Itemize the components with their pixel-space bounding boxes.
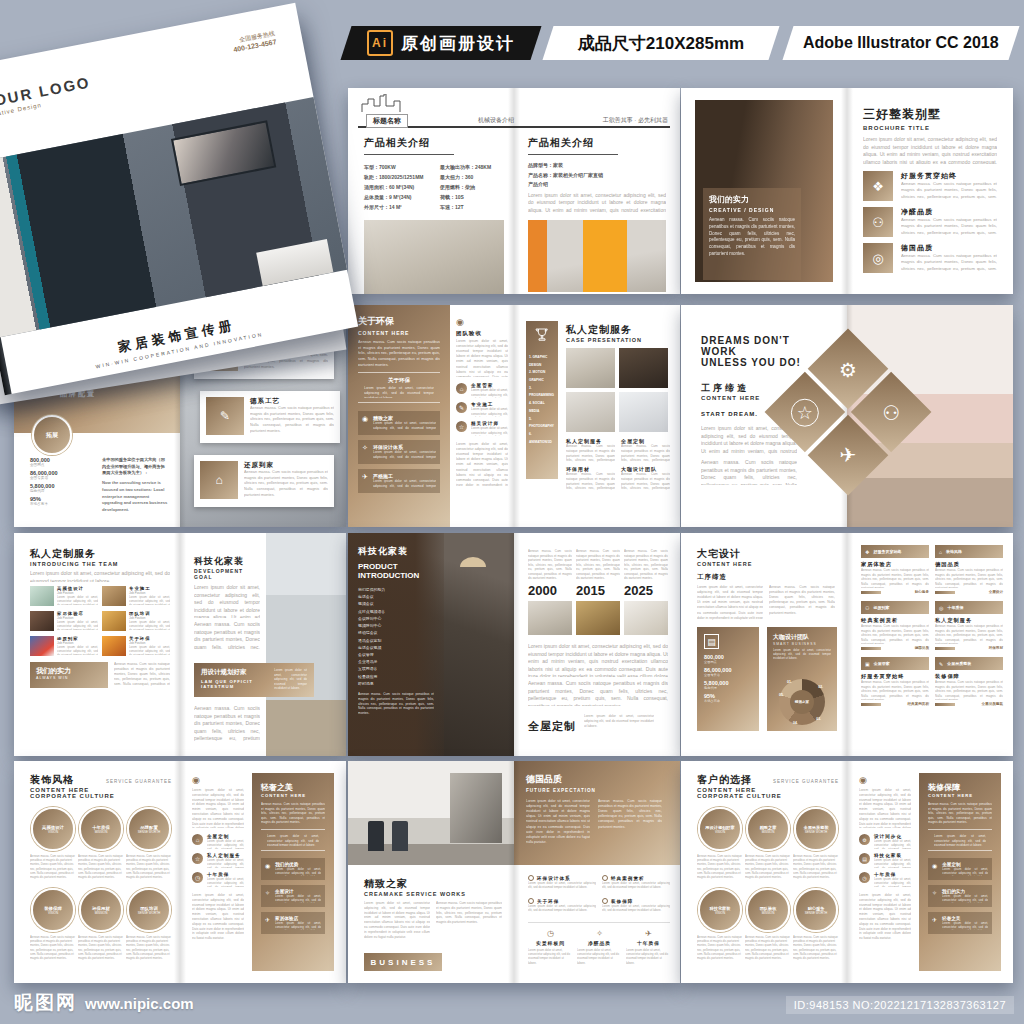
mini-item: ⌂全屋定制Lorem ipsum dolor sit amet, consect…	[192, 834, 244, 849]
mid-paragraph: Lorem ipsum dolor sit amet, consectetur …	[192, 788, 244, 828]
mid-paragraph2: Lorem ipsum dolor sit amet, consectetur …	[192, 893, 244, 939]
tech-subtitle: DEVELOPMENT GOAL	[194, 568, 260, 580]
team-item: ⌂ 全屋管家Lorem ipsum dolor sit amet, consec…	[456, 383, 508, 398]
german-paragraph: Lorem ipsum dolor sit amet, consectetur …	[526, 799, 590, 851]
feature-text: Lorem ipsum dolor sit amet, consectetur …	[942, 894, 988, 903]
service-card: ✎全屋品质整装装修保障Aenean massa. Cum sociis nato…	[935, 657, 1003, 706]
team-intro: Lorem ipsum dolor sit amet, consectetur …	[30, 570, 170, 582]
culture-cell: 高颜值设计VISIONAenean massa. Cum sociis nato…	[30, 807, 76, 882]
product-paragraph: Lorem ipsum dolor sit amet, consectetur …	[528, 192, 666, 214]
card-text: Aenean massa. Cum sociis natoque penatib…	[244, 470, 328, 498]
spread-mansion-design: 大宅设计 CONTENT HERE 工序缔造 Lorem ipsum dolor…	[681, 533, 1013, 756]
bullet-item: 环保设计体系Lorem ipsum dolor sit amet, consec…	[528, 875, 596, 893]
team-title: 私人定制服务	[30, 547, 170, 561]
choice-cell: 贴心服务SENSE WORTHAenean massa. Cum sociis …	[793, 888, 839, 963]
card-footer-label: 全屋设计	[989, 590, 1003, 594]
spec-item: 荷载：10S	[440, 192, 504, 202]
team-column: ◉ 团队验收 Lorem ipsum dolor sit amet, conse…	[456, 317, 508, 486]
bullet-item: 关于环保Lorem ipsum dolor sit amet, consecte…	[528, 898, 596, 916]
craft-icon: ✎	[206, 397, 244, 435]
card-title: 经典案例赏析	[861, 617, 929, 624]
row-text: Lorem ipsum dolor sit amet, consectetur …	[373, 450, 436, 460]
mini-icon: ☆	[192, 853, 203, 864]
member-photo	[102, 636, 126, 656]
donut-label: 05.	[779, 693, 784, 697]
feature-title: 德国品质	[901, 243, 997, 253]
nipic-product-preview: { "colors":{"background":"#a8b1c0","acce…	[0, 0, 1024, 1024]
people-chat-icon: ⚇	[863, 207, 893, 237]
mini-icon: ⚙	[859, 834, 870, 845]
bullet-text: Lorem ipsum dolor sit amet, consectetur …	[528, 904, 596, 916]
business-button: BUSINESS	[364, 953, 442, 971]
topbar-design-text: 原创画册设计	[401, 32, 515, 55]
overlay-paragraph: Aenean massa. Cum sociis natoque penatib…	[709, 217, 795, 261]
team-item: ✎ 专业施工Lorem ipsum dolor sit amet, consec…	[456, 402, 508, 417]
capability-item: 互联网语音	[358, 665, 434, 672]
feature-text: Lorem ipsum dolor sit amet, consectetur …	[275, 867, 321, 876]
timeline-paragraph: Aenean massa. Cum sociis natoque penatib…	[528, 549, 572, 579]
badge-sub: VISION	[48, 830, 58, 834]
bullet-item: 装修保障Lorem ipsum dolor sit amet, consecte…	[602, 898, 670, 916]
process-label: 工序缔造	[697, 573, 837, 582]
stats-list: 800,000全国网点 86,000,000全国专卖店 5,800,000电商代…	[30, 457, 94, 506]
card-header-icon: ⌂	[939, 549, 942, 555]
donut-label: 02.	[818, 685, 823, 689]
item-text: Lorem ipsum dolor sit amet, consectetur …	[471, 426, 508, 436]
bullet-title: 关于环保	[537, 899, 559, 904]
spread-environment-custom: 关于环保 CONTENT HERE Aenean massa. Cum soci…	[348, 305, 680, 527]
creamake-paragraph: Aenean massa. Cum sociis natoque penatib…	[436, 901, 502, 945]
topbar-software-text: Adobe Illustrator CC 2018	[803, 34, 999, 52]
dining-photo: 科技化家装 PRODUCT INTRODUCTION 我们提供的能力电话会议视频…	[348, 533, 514, 756]
mini-text: Lorem ipsum dolor sit amet, consectetur …	[874, 858, 911, 868]
cell-text: Aenean massa. Cum sociis natoque penatib…	[126, 854, 172, 882]
spread-header: 标题名称 机械设备介绍 工欲善其事 · 必先利其器	[358, 100, 670, 128]
feature-text: Lorem ipsum dolor sit amet, consectetur …	[275, 894, 321, 903]
feature-item: ❖ 好服务贯穿始终 Aenean massa. Cum sociis natoq…	[863, 171, 997, 201]
german-subtitle: FUTURE EXPECTATION	[526, 788, 668, 793]
trophy-icon	[533, 326, 551, 344]
timeline-page: Aenean massa. Cum sociis natoque penatib…	[528, 549, 668, 734]
member-photo	[30, 586, 54, 606]
icon-col: ◷实景样板间Lorem ipsum dolor sit amet, consec…	[528, 929, 573, 966]
panel-feature: ◉我们的优势Lorem ipsum dolor sit amet, consec…	[261, 858, 325, 880]
choice-cell: 全屋品质整装SENSE WORTHAenean massa. Cum socii…	[793, 807, 839, 882]
donut-label: 04.	[793, 721, 798, 725]
strength-banner: 我们的实力 ALWAYS WIN	[30, 662, 108, 688]
logo-mark-icon: ◉	[192, 775, 244, 785]
spec-item: 适用面积：60 M²(34N)	[364, 182, 430, 192]
capability-item: 会议呼叫中心	[358, 615, 434, 622]
member-photo	[102, 611, 126, 631]
circle-label: 拓展	[46, 431, 58, 440]
spec-item: 车速：12T	[440, 202, 504, 212]
bonsai-photo	[266, 533, 346, 756]
card-header-icon: ✎	[939, 661, 943, 667]
feature-title: 好服务贯穿始终	[901, 171, 997, 181]
office-photo	[528, 220, 666, 292]
member-text: Lorem ipsum dolor sit amet, consectetur …	[129, 595, 170, 605]
donut-label: 01.	[787, 680, 792, 684]
card-footer-bar	[935, 703, 955, 706]
interior-photo	[364, 220, 504, 294]
badge-sub: MISSION	[762, 911, 775, 915]
stat-label: 市场占有率	[704, 699, 752, 703]
badge-sub: VISION	[715, 830, 725, 834]
topbar-software-label: Adobe Illustrator CC 2018	[782, 26, 1019, 60]
left-title: 产品相关介绍	[364, 136, 454, 155]
feature-text: Aenean massa. Cum sociis natoque penatib…	[901, 181, 997, 199]
member-card: 专业施工Job PositionLorem ipsum dolor sit am…	[102, 586, 170, 606]
spec-item: 轨距：1800/2025/1251MM	[364, 172, 430, 182]
member-card: 家居体验店Job PositionLorem ipsum dolor sit a…	[30, 611, 98, 631]
org-chart-icon: ❖	[863, 171, 893, 201]
col-text: Lorem ipsum dolor sit amet, consectetur …	[577, 948, 622, 966]
card-footer-bar	[861, 647, 881, 650]
case-photo	[619, 348, 668, 388]
mini-text: Lorem ipsum dolor sit amet, consectetur …	[207, 839, 244, 849]
banner-item: 5. PHOTOGRAPHY	[529, 416, 555, 431]
spec-item: 外形尺寸：14 M²	[364, 202, 430, 212]
capability-item: 视频呼叫中心	[358, 622, 434, 629]
tech-paragraph: Lorem ipsum dolor sit amet, consectetur …	[194, 584, 260, 618]
cell-text: Aenean massa. Cum sociis natoque penatib…	[793, 935, 839, 963]
creamake-subtitle: CREAMAKE SERVICE WORKS	[364, 891, 504, 897]
env-row: ◉ 精致之家Lorem ipsum dolor sit amet, consec…	[358, 411, 440, 435]
service-guarantee-label: SERVICE GUARANTEE	[773, 779, 839, 784]
tech-title: 科技化家装	[194, 555, 260, 568]
image-id-badge: ID:948153 NO:20221217132837363127	[786, 996, 1014, 1014]
header-right-text: 工欲善其事 · 必先利其器	[603, 116, 668, 125]
capability-item: 电话会议	[358, 593, 434, 600]
feature-text: Lorem ipsum dolor sit amet, consectetur …	[942, 921, 988, 930]
cover-mockup: YOUR LOGO Creative Design 全国服务热线 400-123…	[0, 3, 358, 396]
row-text: Lorem ipsum dolor sit amet, consectetur …	[373, 421, 436, 431]
tech-left-col: 科技化家装 DEVELOPMENT GOAL Lorem ipsum dolor…	[194, 555, 260, 649]
stat-label: 全国网点	[704, 660, 752, 664]
cell-text: Aenean massa. Cum sociis natoque penatib…	[30, 854, 76, 882]
member-text: Lorem ipsum dolor sit amet, consectetur …	[57, 595, 98, 605]
overlay-sub1: PRODUCT	[358, 562, 434, 571]
bed-corner	[256, 239, 333, 286]
choice-left-page: 客户的选择 CONTENT HERE CORPORATE CULTURE SER…	[697, 773, 839, 963]
choice-cell: 用设计规划好家VISIONAenean massa. Cum sociis na…	[697, 807, 743, 882]
panel-title: 装修保障	[928, 782, 992, 793]
card-text: Aenean massa. Cum sociis natoque penatib…	[250, 406, 334, 434]
card-header-title: 十年质保	[947, 605, 963, 610]
banner-title: 我们的实力	[36, 666, 102, 676]
german-paragraph: Aenean massa. Cum sociis natoque penatib…	[598, 799, 662, 851]
banner-item: 4. SOCIAL MEDIA	[529, 400, 555, 415]
feature-item: ◎ 德国品质 Aenean massa. Cum sociis natoque …	[863, 243, 997, 273]
card-footer-label: 环保用材	[989, 646, 1003, 650]
mini-text: Lorem ipsum dolor sit amet, consectetur …	[874, 839, 911, 849]
service-card: ◎十年质保私人定制服务Aenean massa. Cum sociis nato…	[935, 601, 1003, 650]
card-header-title: 装饰风格	[946, 549, 962, 554]
culture-cell: 装修保障VISIONAenean massa. Cum sociis natoq…	[30, 888, 76, 963]
dreams-title-line1: DREAMS DON'T WORK	[701, 335, 811, 357]
mini-item: ⚙设计同步化Lorem ipsum dolor sit amet, consec…	[859, 834, 911, 849]
cell-text: Aenean massa. Cum sociis natoque penatib…	[78, 854, 124, 882]
mini-icon: ◷	[192, 872, 203, 883]
member-card: 高颜值设计Job PositionLorem ipsum dolor sit a…	[30, 586, 98, 606]
brochure-cover: YOUR LOGO Creative Design 全国服务热线 400-123…	[0, 3, 358, 396]
craft-card: ✎ 德系工艺 Aenean massa. Cum sociis natoque …	[200, 391, 340, 443]
col-text: Lorem ipsum dolor sit amet, consectetur …	[626, 948, 671, 966]
bullet-text: Lorem ipsum dolor sit amet, consectetur …	[602, 904, 670, 916]
cell-text: Aenean massa. Cum sociis natoque penatib…	[30, 935, 76, 963]
donut-center-label: 精致之家	[790, 690, 814, 714]
feature-text: Lorem ipsum dolor sit amet, consectetur …	[942, 867, 988, 876]
target-icon: ◎	[863, 243, 893, 273]
bullet-title: 装修保障	[611, 899, 633, 904]
spec-item: 最大扭力：360	[440, 172, 504, 182]
mid-paragraph2: Lorem ipsum dolor sit amet, consectetur …	[859, 893, 911, 939]
mini-icon: ◷	[859, 872, 870, 883]
home-card: ⌂ 还原到家 Aenean massa. Cum sociis natoque …	[194, 455, 334, 507]
culture-cell: 团队培训SENSE WORTHAenean massa. Cum sociis …	[126, 888, 172, 963]
feature-text: Aenean massa. Cum sociis natoque penatib…	[901, 253, 997, 271]
card-footer-label: 贴心服务	[915, 590, 929, 594]
panel-quote: Lorem ipsum dolor sit amet, consectetur …	[934, 834, 986, 846]
quote-text: Lorem ipsum dolor sit amet, consectetur …	[364, 386, 434, 398]
dreams-paragraph: Aenean massa. Cum sociis natoque penatib…	[701, 459, 797, 485]
box-subtitle: LAM QUE OFFICIT IATESTRUM	[201, 679, 266, 689]
intro-paragraph: Lorem ipsum dolor sit amet, consectetur …	[863, 136, 997, 164]
case-content: 私人定制服务 CASE PRESENTATION 私人定制服务Aenean ma…	[566, 323, 668, 490]
choice-mid-col: ◉ Lorem ipsum dolor sit amet, consectetu…	[859, 775, 911, 939]
culture-mid-col: ◉ Lorem ipsum dolor sit amet, consectetu…	[192, 775, 244, 939]
card-footer-label: 德国品质	[915, 646, 929, 650]
col-title: 净醛品质	[577, 940, 622, 946]
card-text: Aenean massa. Cum sociis natoque penatib…	[935, 624, 1003, 644]
timeline-year: 2015	[576, 583, 620, 598]
spread-product-intro: 标题名称 机械设备介绍 工欲善其事 · 必先利其器 产品相关介绍 车型：700K…	[348, 88, 680, 294]
culture-cell: 品牌配置SENSE WORTHAenean massa. Cum sociis …	[126, 807, 172, 882]
icon-col: ✈十年质保Lorem ipsum dolor sit amet, consect…	[626, 929, 671, 966]
capability-item: 即时消息	[358, 680, 434, 687]
box-title: 用设计规划好家	[201, 668, 266, 677]
banner-item: 3. PROGRAMMING	[529, 385, 555, 400]
col-text: Aenean massa. Cum sociis natoque penatib…	[566, 444, 615, 462]
card-header-icon: ❖	[865, 549, 869, 555]
bullet-text: Lorem ipsum dolor sit amet, consectetur …	[602, 881, 670, 893]
service-card: ⌂装饰风格德国品质Aenean massa. Cum sociis natoqu…	[935, 545, 1003, 594]
stat-label: 全国专卖店	[30, 476, 94, 480]
stats-card: ▤ 800,000全国网点 86,000,000全国专卖店 5,800,000电…	[697, 627, 759, 731]
team-title: 团队验收	[456, 330, 508, 337]
mansion-title: 大宅设计	[697, 547, 837, 561]
badge-sub: SENSE WORTH	[805, 911, 827, 915]
whole-house-text: Lorem ipsum dolor sit amet, consectetur …	[584, 714, 654, 734]
member-text: Lorem ipsum dolor sit amet, consectetur …	[129, 645, 170, 655]
card-text: Aenean massa. Cum sociis natoque penatib…	[861, 624, 929, 644]
card-footer-bar	[935, 647, 955, 650]
page-gutter	[174, 761, 186, 983]
card-title: 德国品质	[935, 561, 1003, 568]
creamake-paragraph: Lorem ipsum dolor sit amet, consectetur …	[364, 901, 430, 945]
tech-paragraph-bottom: Aenean massa. Cum sociis natoque penatib…	[194, 705, 260, 741]
panel-paragraph: Aenean massa. Cum sociis natoque penatib…	[261, 802, 325, 824]
card-header-title: 好服务贯穿始终	[873, 549, 901, 554]
overlay-sub2: INTRODUCTION	[358, 571, 434, 580]
spread-culture-a: 装饰风格 CONTENT HERE CORPORATE CULTURE SERV…	[14, 761, 346, 983]
topbar-design-label: Ai 原创画册设计	[340, 26, 541, 60]
capability-item: 企业通讯录	[358, 658, 434, 665]
panel-quote: Lorem ipsum dolor sit amet, consectetur …	[267, 834, 319, 846]
panel-title: 轻奢之美	[261, 782, 325, 793]
spread-team: 私人定制服务 INTRODUCING THE TEAM Lorem ipsum …	[14, 533, 346, 756]
tech-paragraph: Aenean massa. Cum sociis natoque penatib…	[194, 621, 260, 649]
topbar-size-text: 成品尺寸210X285mm	[578, 32, 744, 55]
env-row: ✧ 环保设计体系Lorem ipsum dolor sit amet, cons…	[358, 440, 440, 464]
lux-panel: 轻奢之美 CONTENT HERE Aenean massa. Cum soci…	[252, 773, 334, 971]
cell-text: Aenean massa. Cum sociis natoque penatib…	[697, 854, 743, 882]
item-text: Lorem ipsum dolor sit amet, consectetur …	[471, 388, 508, 398]
card-title: 还原到家	[244, 461, 328, 470]
badge-sub: SENSE WORTH	[138, 830, 160, 834]
team-paragraph2: Lorem ipsum dolor sit amet, consectetur …	[456, 442, 508, 486]
env-row: ✈ 严格施工Lorem ipsum dolor sit amet, consec…	[358, 469, 440, 493]
card-text: Aenean massa. Cum sociis natoque penatib…	[861, 568, 929, 588]
spec-item: 车型：700KW	[364, 162, 430, 172]
culture-cell: 十年质保MISSIONAenean massa. Cum sociis nato…	[78, 807, 124, 882]
member-photo	[102, 586, 126, 606]
card-footer-bar	[861, 703, 881, 706]
card-footer-bar	[861, 591, 881, 594]
timeline-paragraph: Aenean massa. Cum sociis natoque penatib…	[576, 549, 620, 579]
mini-item: ▤科技化家装Lorem ipsum dolor sit amet, consec…	[859, 853, 911, 868]
banner-side-text: Aenean massa. Cum sociis natoque penatib…	[114, 662, 170, 688]
creamake-title: 精致之家	[364, 877, 504, 891]
badge-sub: MISSION	[95, 830, 108, 834]
panel-feature: ✧全屋设计Lorem ipsum dolor sit amet, consect…	[261, 885, 325, 907]
cover-logo-block: YOUR LOGO Creative Design	[0, 73, 93, 118]
bullet-title: 环保设计体系	[537, 876, 571, 881]
spread-culture-b: 客户的选择 CONTENT HERE CORPORATE CULTURE SER…	[681, 761, 1013, 983]
culture-cell: 环保用材MISSIONAenean massa. Cum sociis nato…	[78, 888, 124, 963]
panel-feature: ◉全屋定制Lorem ipsum dolor sit amet, consect…	[928, 858, 992, 880]
product-row: 品牌型号：家装	[528, 161, 666, 171]
dreams-title-line2: UNLESS YOU DO!	[701, 357, 811, 368]
service-card: ▣全屋管家好服务贯穿始终Aenean massa. Cum sociis nat…	[861, 657, 929, 706]
cover-photo	[0, 97, 347, 338]
kitchen-chair	[368, 821, 384, 851]
steward-icon: ⌂	[456, 383, 467, 394]
card-title: 家居体验店	[861, 561, 929, 568]
panel-feature: ✧我们的实力Lorem ipsum dolor sit amet, consec…	[928, 885, 992, 907]
feature-text: Lorem ipsum dolor sit amet, consectetur …	[275, 921, 321, 930]
mansion-subtitle: CONTENT HERE	[697, 561, 837, 567]
nipic-logo: 昵图网	[14, 990, 77, 1016]
team-subtitle: INTRODUCING THE TEAM	[30, 561, 170, 567]
brochure-right-page: 三好整装别墅 BROCHURE TITLE Lorem ipsum dolor …	[863, 106, 997, 273]
page-gutter	[841, 533, 853, 756]
spread-german-quality: 德国品质 FUTURE EXPECTATION Lorem ipsum dolo…	[348, 761, 680, 983]
team-card-text: Lorem ipsum dolor sit amet, consectetur …	[773, 648, 831, 664]
panel-subtitle: CONTENT HERE	[261, 793, 325, 798]
timeline-body: Lorem ipsum dolor sit amet, consectetur …	[528, 643, 668, 677]
badge-sub: SENSE WORTH	[805, 830, 827, 834]
right-title: 产品相关介绍	[528, 136, 618, 155]
paper-plane-icon: ✈	[265, 916, 270, 923]
row-text: Lorem ipsum dolor sit amet, consectetur …	[373, 479, 436, 489]
overlay-paragraph: Aenean massa. Cum sociis natoque penatib…	[358, 692, 434, 718]
timeline-photo	[528, 601, 572, 635]
header-center-text: 机械设备介绍	[478, 116, 514, 125]
chart-icon: ▤	[704, 634, 719, 649]
mid-paragraph: Lorem ipsum dolor sit amet, consectetur …	[859, 788, 911, 828]
spread-tech-product: 科技化家装 PRODUCT INTRODUCTION 我们提供的能力电话会议视频…	[348, 533, 680, 756]
expand-circle-badge: 拓展	[32, 415, 72, 455]
case-title: 私人定制服务	[566, 323, 668, 337]
member-text: Lorem ipsum dolor sit amet, consectetur …	[129, 620, 170, 630]
team-card-sub: SMART BUSINESS	[773, 642, 831, 646]
card-text: Aenean massa. Cum sociis natoque penatib…	[861, 680, 929, 700]
col-title: 实景样板间	[528, 940, 573, 946]
choice-cell: 精致之家MISSIONAenean massa. Cum sociis nato…	[745, 807, 791, 882]
bullet-item: 经典案例赏析Lorem ipsum dolor sit amet, consec…	[602, 875, 670, 893]
capability-list: 我们提供的能力电话会议视频会议点对点视频语音会议呼叫中心视频呼叫中心移动端会议通…	[358, 586, 434, 687]
case-photo	[566, 348, 615, 388]
donut-chart: 精致之家 01. 02. 03. 04. 05.	[779, 679, 825, 725]
product-left-page: 产品相关介绍 车型：700KW 轨距：1800/2025/1251MM 适用面积…	[364, 136, 504, 294]
environment-panel: 关于环保 CONTENT HERE Aenean massa. Cum soci…	[348, 305, 450, 527]
home-icon: ⌂	[200, 461, 238, 499]
designer-icon: ☆	[456, 421, 467, 432]
stat-label: 电商代理	[30, 489, 94, 493]
spread-dreams: DREAMS DON'T WORK UNLESS YOU DO! 工序缔造 CO…	[681, 305, 1013, 527]
mini-item: ◷十年质保Lorem ipsum dolor sit amet, consect…	[859, 872, 911, 887]
banner-item: 6. ANIMATION/3D	[529, 431, 555, 446]
choice-sub2: CORPORATE CULTURE	[697, 793, 839, 799]
capability-item: 点对点视频语音	[358, 608, 434, 615]
megaphone-icon: ✈	[362, 473, 368, 481]
pin-icon: ◉	[362, 415, 368, 423]
mini-text: Lorem ipsum dolor sit amet, consectetur …	[207, 858, 244, 868]
team-card-title: 大咖设计团队	[773, 633, 831, 642]
card-header-title: 全屋品质整装	[947, 661, 971, 666]
spread-brochure-title: 我们的实力 CREATIVE / DESIGN Aenean massa. Cu…	[681, 88, 1013, 294]
col-title: 十年质保	[626, 940, 671, 946]
donut-label: 03.	[816, 717, 821, 721]
stat-label: 市场占有率	[30, 502, 94, 506]
team-chart-card: 大咖设计团队 SMART BUSINESS Lorem ipsum dolor …	[767, 627, 837, 731]
guarantee-panel: 装修保障 CONTENT HERE Aenean massa. Cum soci…	[919, 773, 1001, 971]
stat-label: 全国专卖店	[704, 673, 752, 677]
title-name-box: 标题名称	[366, 114, 408, 128]
timeline-body: Aenean massa. Cum sociis natoque penatib…	[528, 680, 668, 706]
panel-feature: ✈家居体验店Lorem ipsum dolor sit amet, consec…	[261, 912, 325, 934]
capability-item: 电话会议视频	[358, 644, 434, 651]
mini-text: Lorem ipsum dolor sit amet, consectetur …	[874, 877, 911, 887]
logo-mark-icon: ◉	[456, 317, 508, 327]
brochure-subtitle: BROCHURE TITLE	[863, 125, 997, 131]
capability-item: 会议管理	[358, 651, 434, 658]
card-footer-label: 经典案例赏析	[907, 702, 929, 706]
product-row: 产品名称：家装相关介绍厂家直销	[528, 171, 666, 181]
panel-paragraph: Aenean massa. Cum sociis natoque penatib…	[928, 802, 992, 824]
member-photo	[30, 636, 54, 656]
member-text: Lorem ipsum dolor sit amet, consectetur …	[57, 645, 98, 655]
construction-icon: ✎	[456, 402, 467, 413]
card-title: 装修保障	[935, 673, 1003, 680]
card-footer-label: 全屋品质整装	[981, 702, 1003, 706]
bulb-icon: ✧	[932, 889, 937, 896]
culture-left-page: 装饰风格 CONTENT HERE CORPORATE CULTURE SERV…	[30, 773, 172, 963]
card-header-icon: ⚇	[865, 605, 869, 611]
bullet-title: 经典案例赏析	[611, 876, 645, 881]
